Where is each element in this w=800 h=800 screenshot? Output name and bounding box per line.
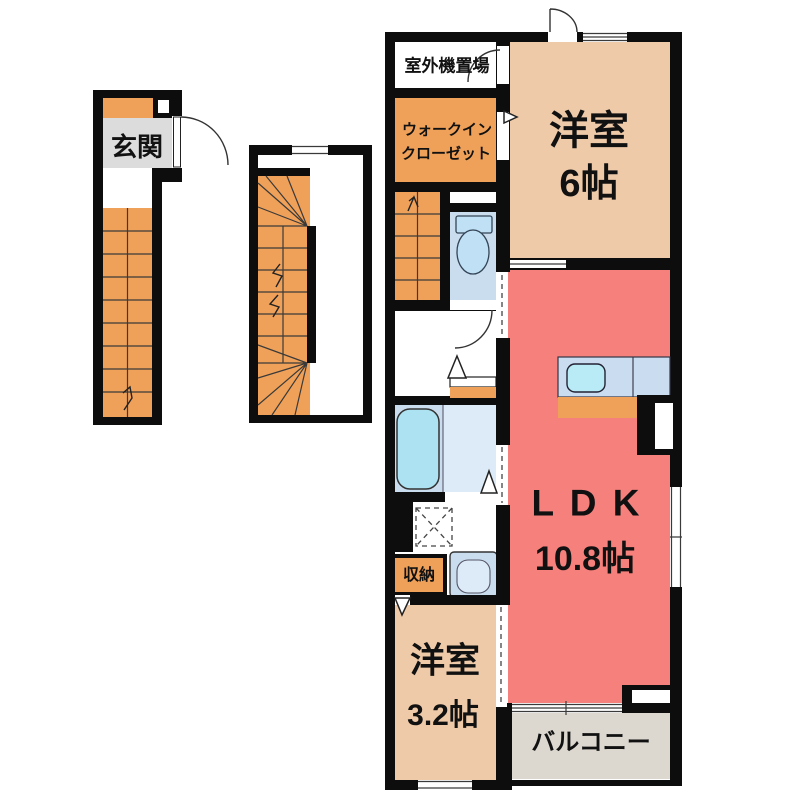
label-western6-size: 6帖 [559,165,618,203]
washbasin-icon [450,552,497,597]
label-outdoor-unit: 室外機置場 [405,58,490,75]
floor-plan-drawing [0,0,800,800]
mid-stairs-block [249,145,372,423]
entrance-door-arc [181,117,228,165]
room-walk-in-closet [395,98,498,182]
label-ldk-name: L D K [532,485,643,522]
label-balcony: バルコニー [531,731,651,755]
unit-entry-door-arc [550,9,577,32]
kitchen-sink-icon [567,364,605,392]
label-ldk-size: 10.8帖 [535,542,635,576]
label-western3-name: 洋室 [410,644,480,679]
label-wic-line1: ウォークイン [402,123,492,138]
label-genkan: 玄関 [111,134,163,160]
label-wic-line2: クローゼット [401,147,491,162]
label-western6-name: 洋室 [549,111,629,151]
room-bathroom [395,405,496,492]
label-western3-size: 3.2帖 [407,701,479,731]
floor-plan: 玄関 室外機置場 ウォークイン クローゼット 洋室 6帖 L D K 10.8帖… [0,0,800,800]
stairs-u-turn [258,176,316,415]
bathtub-icon [397,409,439,489]
room-western3 [395,605,496,780]
room-toilet [450,192,496,300]
stairs-second-floor [395,192,440,303]
stairs-first-floor [103,208,152,417]
entrance-porch-strip [103,98,155,118]
label-storage: 収納 [403,568,435,584]
